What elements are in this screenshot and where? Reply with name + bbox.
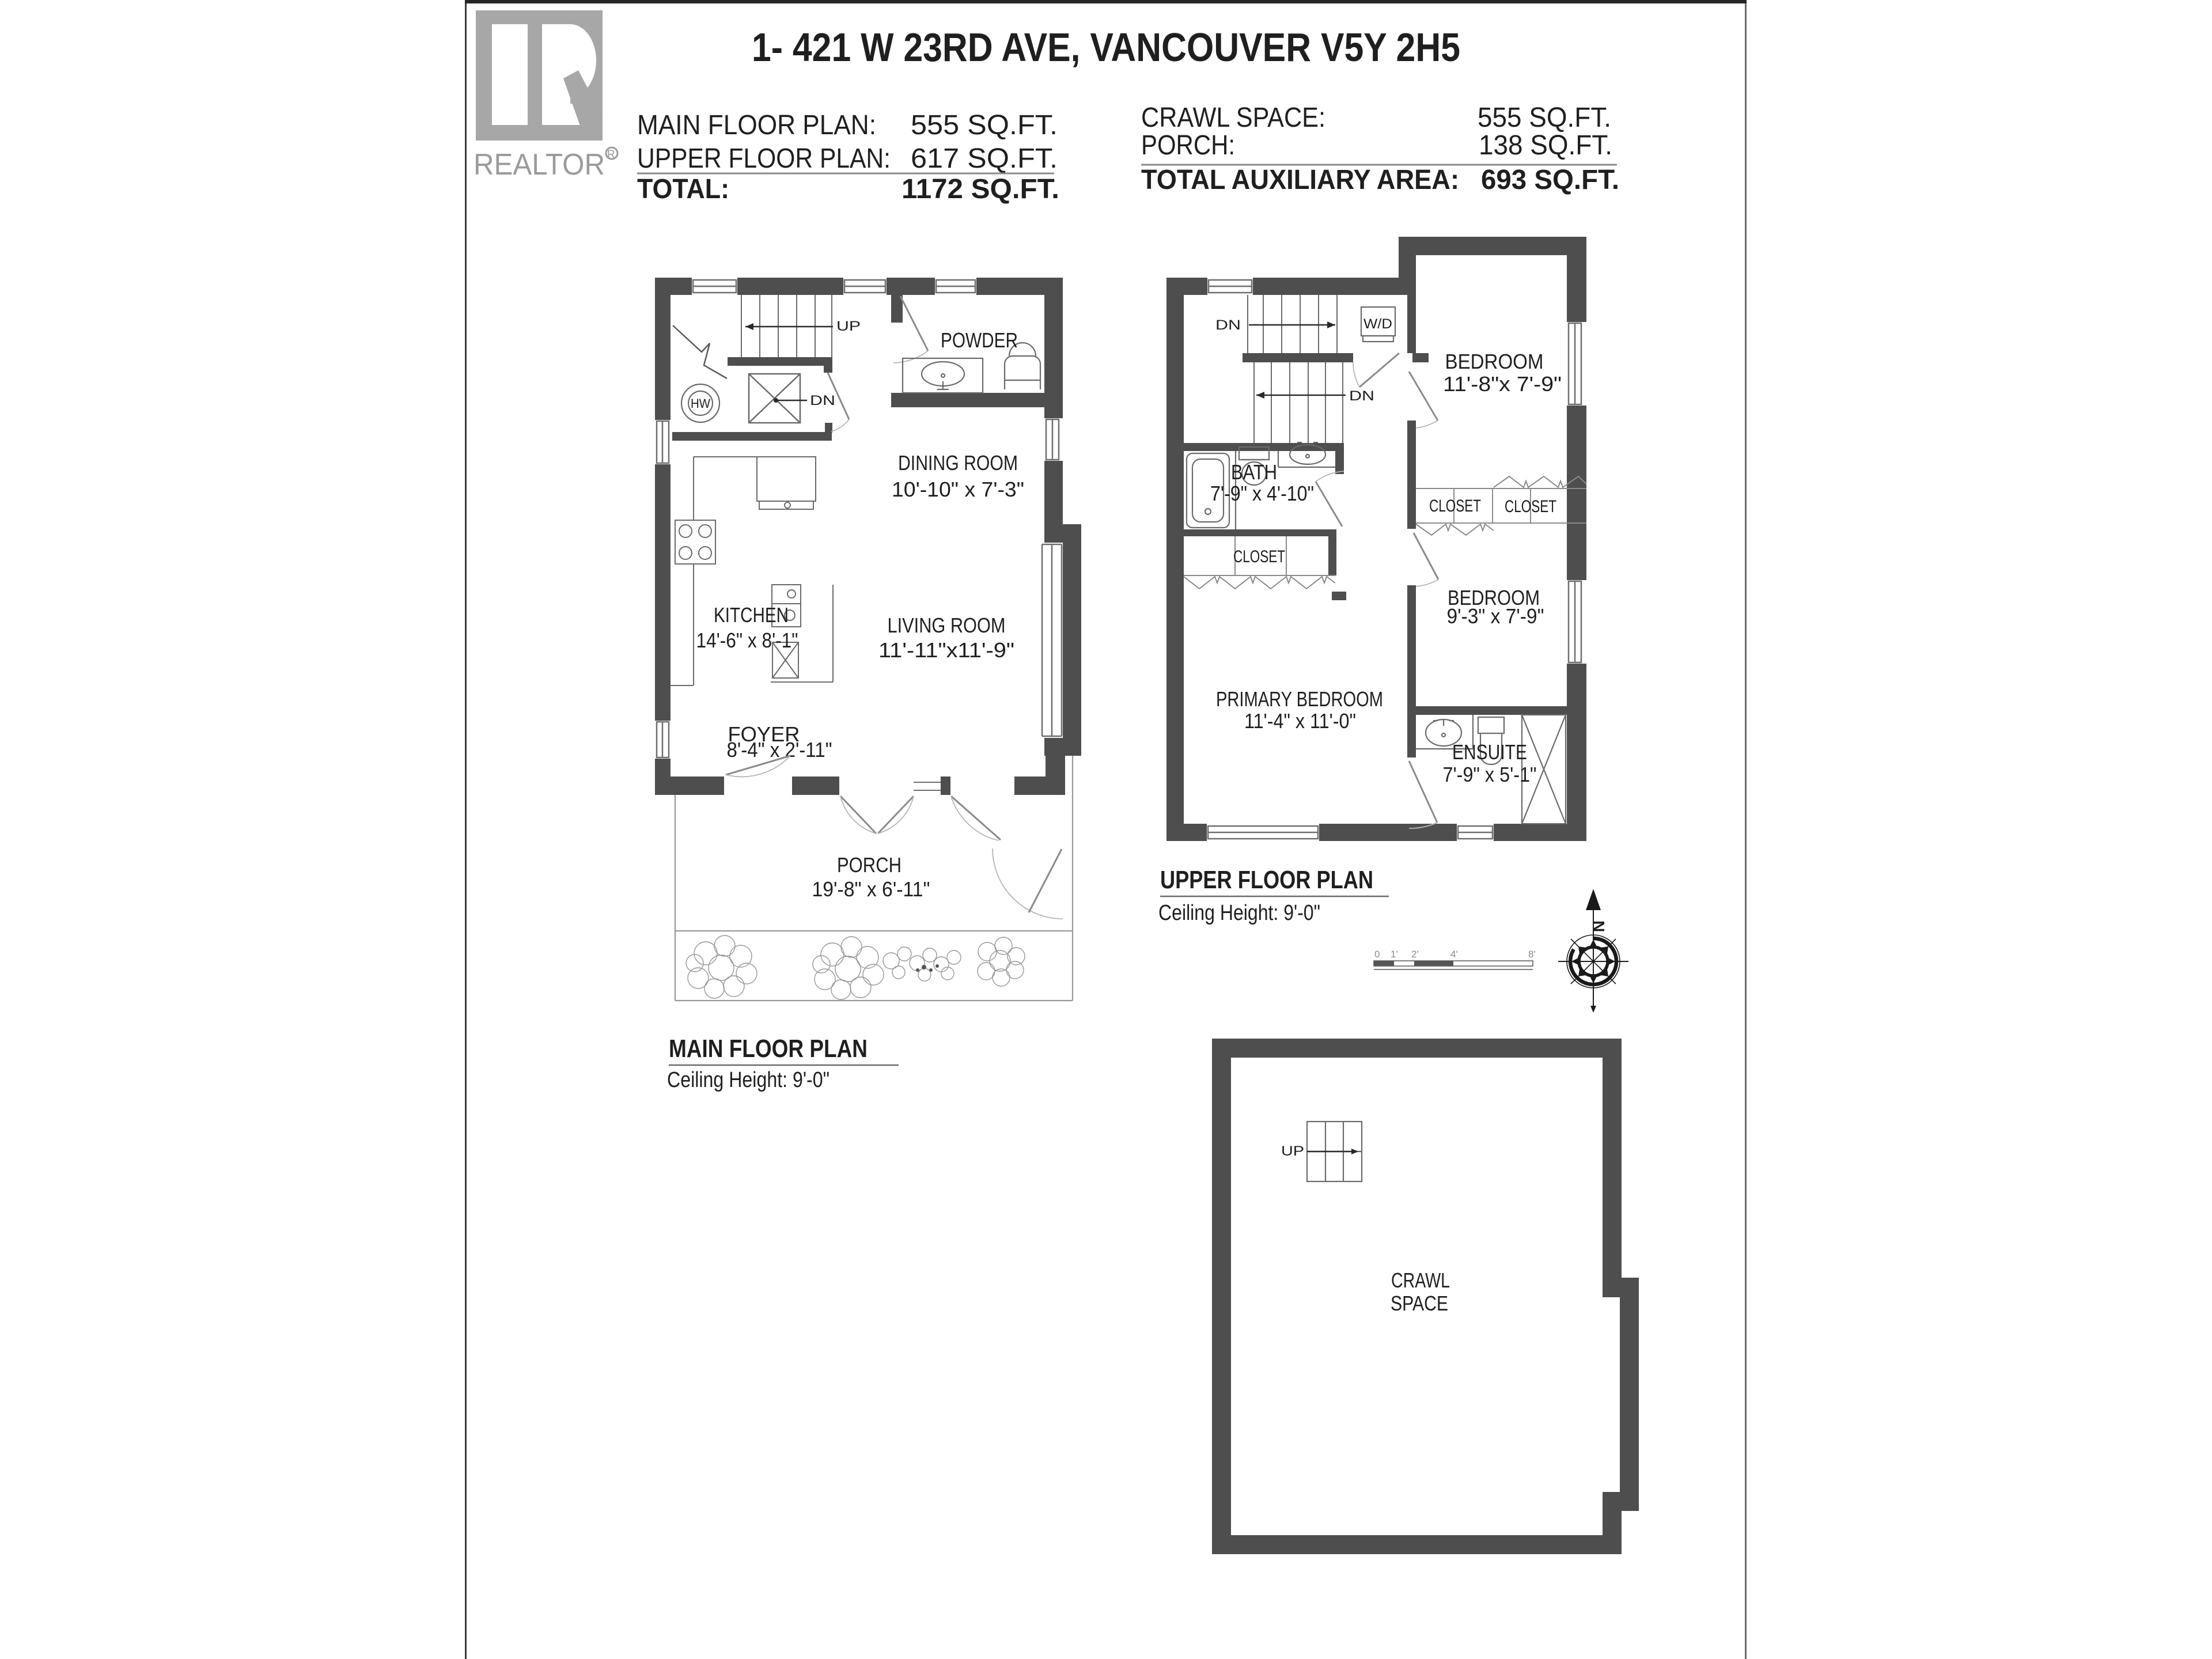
svg-text:11'-4" x 11'-0": 11'-4" x 11'-0" xyxy=(1244,709,1356,733)
svg-text:DN: DN xyxy=(810,393,835,408)
svg-text:PORCH: PORCH xyxy=(837,853,902,877)
svg-text:POWDER: POWDER xyxy=(941,328,1018,352)
svg-text:DN: DN xyxy=(1215,317,1241,333)
svg-text:BATH: BATH xyxy=(1231,460,1277,484)
svg-text:CRAWL: CRAWL xyxy=(1391,1268,1450,1292)
svg-text:MAIN FLOOR PLAN: MAIN FLOOR PLAN xyxy=(669,1035,868,1063)
svg-text:Ceiling Height: 9'-0": Ceiling Height: 9'-0" xyxy=(667,1068,829,1092)
svg-text:UPPER FLOOR PLAN:: UPPER FLOOR PLAN: xyxy=(637,143,891,174)
svg-text:W/D: W/D xyxy=(1363,316,1392,332)
svg-text:DINING ROOM: DINING ROOM xyxy=(898,451,1018,475)
svg-text:DN: DN xyxy=(1349,388,1374,404)
svg-text:1172 SQ.FT.: 1172 SQ.FT. xyxy=(902,174,1059,204)
svg-text:4': 4' xyxy=(1450,949,1458,960)
svg-text:TOTAL AUXILIARY AREA:: TOTAL AUXILIARY AREA: xyxy=(1141,165,1459,195)
svg-text:138 SQ.FT.: 138 SQ.FT. xyxy=(1479,130,1612,161)
svg-text:TOTAL:: TOTAL: xyxy=(637,174,729,204)
svg-text:UP: UP xyxy=(1281,1143,1304,1159)
svg-text:11'-8"x 7'-9": 11'-8"x 7'-9" xyxy=(1443,372,1562,396)
svg-text:CLOSET: CLOSET xyxy=(1429,497,1481,516)
svg-text:693 SQ.FT.: 693 SQ.FT. xyxy=(1481,165,1619,195)
svg-text:UPPER FLOOR PLAN: UPPER FLOOR PLAN xyxy=(1160,866,1373,894)
svg-text:MAIN FLOOR PLAN:: MAIN FLOOR PLAN: xyxy=(637,110,876,141)
svg-text:19'-8" x 6'-11": 19'-8" x 6'-11" xyxy=(812,877,930,901)
svg-text:2': 2' xyxy=(1411,949,1419,960)
svg-text:REALTOR: REALTOR xyxy=(474,148,605,181)
svg-text:ENSUITE: ENSUITE xyxy=(1452,740,1527,764)
svg-text:11'-11"x11'-9": 11'-11"x11'-9" xyxy=(878,638,1014,662)
svg-text:N: N xyxy=(1590,921,1608,932)
svg-text:BEDROOM: BEDROOM xyxy=(1445,350,1544,373)
svg-text:KITCHEN: KITCHEN xyxy=(714,603,789,627)
svg-text:UP: UP xyxy=(836,319,861,334)
svg-text:555 SQ.FT.: 555 SQ.FT. xyxy=(911,110,1058,141)
svg-text:Ceiling Height: 9'-0": Ceiling Height: 9'-0" xyxy=(1158,901,1320,925)
svg-text:10'-10" x 7'-3": 10'-10" x 7'-3" xyxy=(892,478,1024,501)
svg-text:CLOSET: CLOSET xyxy=(1505,497,1556,516)
svg-text:8': 8' xyxy=(1528,949,1536,960)
svg-text:0: 0 xyxy=(1374,949,1380,960)
svg-text:1- 421 W 23RD AVE, VANCOUVER V: 1- 421 W 23RD AVE, VANCOUVER V5Y 2H5 xyxy=(752,25,1460,70)
svg-text:8'-4" x 2'-11": 8'-4" x 2'-11" xyxy=(727,738,832,762)
svg-text:1': 1' xyxy=(1391,949,1398,960)
svg-text:PORCH:: PORCH: xyxy=(1141,130,1235,161)
svg-text:HW: HW xyxy=(691,396,710,411)
svg-text:7'-9" x 5'-1": 7'-9" x 5'-1" xyxy=(1443,763,1537,786)
svg-text:7'-9" x 4'-10": 7'-9" x 4'-10" xyxy=(1210,482,1314,505)
svg-text:CLOSET: CLOSET xyxy=(1233,547,1285,566)
svg-text:555 SQ.FT.: 555 SQ.FT. xyxy=(1478,103,1611,133)
svg-text:9'-3" x 7'-9": 9'-3" x 7'-9" xyxy=(1447,604,1544,628)
svg-text:LIVING ROOM: LIVING ROOM xyxy=(888,613,1006,637)
svg-text:14'-6" x 8'-1": 14'-6" x 8'-1" xyxy=(696,628,798,652)
svg-text:617 SQ.FT.: 617 SQ.FT. xyxy=(911,143,1058,174)
svg-text:R: R xyxy=(607,149,615,161)
svg-text:CRAWL SPACE:: CRAWL SPACE: xyxy=(1141,103,1325,133)
svg-text:SPACE: SPACE xyxy=(1391,1291,1448,1315)
svg-text:PRIMARY BEDROOM: PRIMARY BEDROOM xyxy=(1216,687,1383,711)
